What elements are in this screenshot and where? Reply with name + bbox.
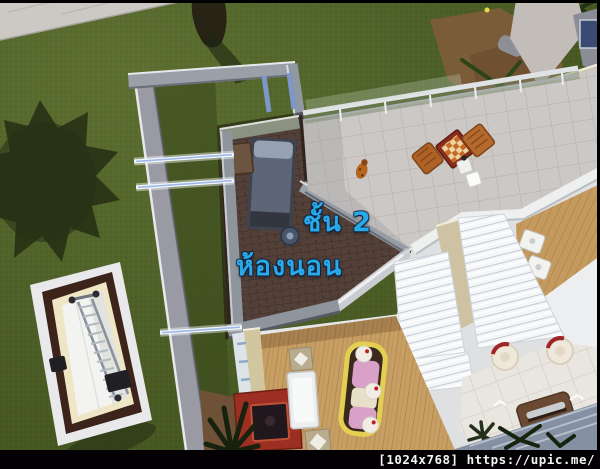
game-viewport: ชั้น 2 ห้องนอน [1024x768] https://upic.m… bbox=[0, 0, 600, 469]
watermark-bar: [1024x768] https://upic.me/ bbox=[0, 450, 600, 469]
top-border bbox=[0, 0, 600, 3]
sofa[interactable] bbox=[339, 342, 386, 435]
watermark-text: [1024x768] https://upic.me/ bbox=[378, 452, 600, 467]
game-scene bbox=[0, 0, 600, 469]
bed[interactable] bbox=[247, 137, 297, 231]
room-annotation: ห้องนอน bbox=[236, 252, 342, 282]
floor-speaker-1[interactable] bbox=[289, 347, 313, 371]
bar-counter[interactable] bbox=[287, 371, 319, 429]
butterfly[interactable] bbox=[485, 8, 490, 13]
chamber-pot[interactable] bbox=[281, 227, 299, 245]
small-gadget[interactable] bbox=[461, 155, 466, 160]
floor-annotation: ชั้น 2 bbox=[303, 208, 372, 238]
